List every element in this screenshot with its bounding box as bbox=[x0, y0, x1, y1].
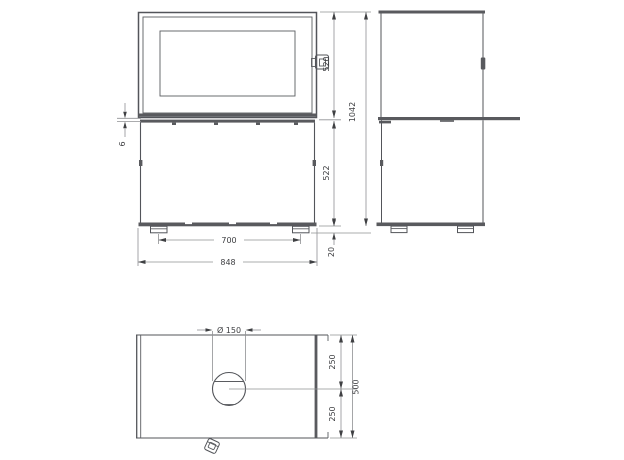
side-foot-right bbox=[458, 226, 474, 233]
dimension-door-height-520: 520 bbox=[319, 12, 371, 120]
base-plate bbox=[139, 223, 317, 227]
lower-top-plate bbox=[140, 120, 315, 123]
dim-label-6: 6 bbox=[118, 141, 127, 146]
base-notch bbox=[229, 223, 236, 225]
dimension-total-height-1042: 1042 bbox=[348, 12, 368, 226]
door-sill-plate bbox=[139, 114, 317, 117]
side-foot-left bbox=[391, 226, 407, 233]
dim-label-520: 520 bbox=[322, 56, 331, 71]
side-mid-clip bbox=[440, 120, 454, 122]
technical-drawing-sheet: 520 522 20 6 700 bbox=[0, 0, 624, 460]
top-right-panel bbox=[315, 335, 318, 438]
top-handle-knob bbox=[204, 438, 220, 454]
dimension-width-848: 848 bbox=[138, 228, 317, 267]
dim-label-848: 848 bbox=[220, 258, 235, 267]
dim-label-20: 20 bbox=[327, 247, 336, 257]
dimension-depth-500: 500 bbox=[351, 335, 361, 438]
dimension-body-height-522: 522 bbox=[319, 121, 341, 226]
dim-label-500: 500 bbox=[352, 379, 361, 394]
base-notch bbox=[185, 223, 192, 225]
side-clip-right bbox=[313, 160, 316, 166]
side-mid-plate bbox=[378, 117, 520, 120]
joint-clip bbox=[172, 123, 176, 125]
front-door-frame-outer bbox=[139, 13, 317, 118]
drawing-canvas: 520 522 20 6 700 bbox=[0, 0, 624, 460]
dimension-gap-6: 6 bbox=[117, 103, 141, 147]
front-view bbox=[139, 13, 329, 233]
side-clip bbox=[380, 160, 383, 166]
top-view bbox=[136, 335, 328, 454]
dim-label-250-bottom: 250 bbox=[328, 406, 337, 421]
front-door-glass bbox=[160, 31, 295, 96]
dim-label-250-top: 250 bbox=[328, 354, 337, 369]
base-notch bbox=[270, 223, 277, 225]
dimension-foot-height-20: 20 bbox=[311, 220, 371, 257]
front-foot-right bbox=[293, 226, 310, 233]
dim-label-522: 522 bbox=[322, 165, 331, 180]
side-base-plate bbox=[377, 223, 486, 227]
side-clip-left bbox=[139, 160, 142, 166]
joint-clip bbox=[294, 123, 298, 125]
joint-clip bbox=[214, 123, 218, 125]
side-door-handle bbox=[481, 58, 486, 70]
dim-label-diameter-150: Ø 150 bbox=[217, 325, 241, 335]
joint-clip bbox=[256, 123, 260, 125]
dimension-feet-spacing-700: 700 bbox=[159, 234, 301, 245]
side-view bbox=[377, 11, 521, 233]
dim-label-700: 700 bbox=[221, 236, 236, 245]
dim-label-1042: 1042 bbox=[348, 102, 357, 122]
front-foot-left bbox=[151, 226, 168, 233]
side-mid-bracket bbox=[379, 121, 391, 124]
side-top-plate bbox=[379, 11, 486, 14]
